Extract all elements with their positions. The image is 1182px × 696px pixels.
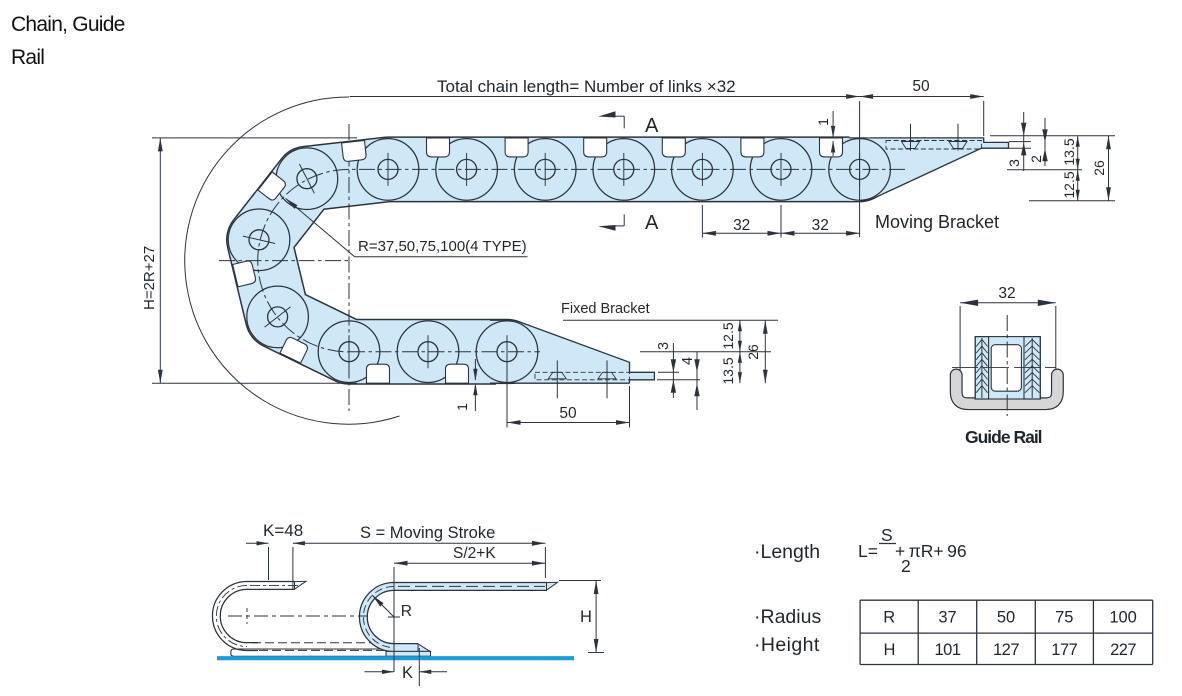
svg-text:Fixed Bracket: Fixed Bracket (561, 301, 650, 317)
svg-text:50: 50 (997, 609, 1015, 627)
svg-text:3: 3 (656, 342, 672, 350)
svg-text:50: 50 (912, 78, 930, 95)
svg-text:32: 32 (812, 217, 829, 234)
svg-text:R: R (401, 603, 412, 620)
svg-text:H=2R+27: H=2R+27 (141, 246, 158, 310)
svg-text:32: 32 (998, 285, 1015, 302)
svg-text:H: H (883, 641, 894, 659)
svg-text:H: H (580, 608, 592, 626)
svg-text:·Length: ·Length (754, 541, 820, 563)
svg-text:L=: L= (858, 541, 878, 561)
svg-text:50: 50 (559, 405, 577, 422)
svg-text:Total chain length= Number of: Total chain length= Number of links ×32 (437, 77, 736, 96)
svg-text:Rail: Rail (11, 46, 44, 69)
svg-text:A: A (645, 212, 659, 234)
svg-text:2: 2 (1028, 155, 1044, 163)
svg-text:13.5: 13.5 (720, 357, 736, 384)
svg-text:Chain, Guide: Chain, Guide (11, 13, 125, 36)
svg-text:·Height: ·Height (754, 634, 820, 656)
svg-text:S = Moving Stroke: S = Moving Stroke (360, 524, 495, 542)
svg-text:127: 127 (993, 641, 1019, 659)
svg-text:12.5: 12.5 (1061, 171, 1077, 198)
svg-text:101: 101 (934, 641, 960, 659)
svg-text:S/2+K: S/2+K (453, 545, 496, 562)
svg-text:13.5: 13.5 (1061, 138, 1077, 165)
svg-text:R=37,50,75,100(4 TYPE): R=37,50,75,100(4 TYPE) (358, 238, 527, 255)
svg-text:3: 3 (1006, 159, 1022, 167)
svg-text:37: 37 (938, 609, 956, 627)
svg-text:Moving Bracket: Moving Bracket (875, 212, 999, 232)
svg-text:26: 26 (1091, 160, 1107, 176)
svg-text:12.5: 12.5 (720, 322, 736, 349)
svg-text:·Radius: ·Radius (754, 606, 821, 628)
svg-text:A: A (645, 115, 659, 137)
svg-text:32: 32 (733, 217, 750, 234)
svg-text:177: 177 (1051, 641, 1077, 659)
svg-text:S: S (881, 525, 893, 545)
svg-text:K=48: K=48 (263, 521, 303, 540)
svg-text:1: 1 (815, 118, 831, 126)
svg-text:26: 26 (745, 344, 761, 360)
svg-text:100: 100 (1109, 609, 1137, 627)
svg-text:75: 75 (1055, 609, 1073, 627)
svg-text:K: K (402, 664, 413, 682)
svg-text:4: 4 (680, 357, 696, 365)
svg-text:+ πR+ 96: + πR+ 96 (895, 541, 967, 561)
svg-text:Guide Rail: Guide Rail (965, 427, 1042, 447)
svg-text:1: 1 (454, 403, 470, 411)
svg-text:227: 227 (1110, 641, 1136, 659)
svg-text:R: R (883, 609, 895, 627)
